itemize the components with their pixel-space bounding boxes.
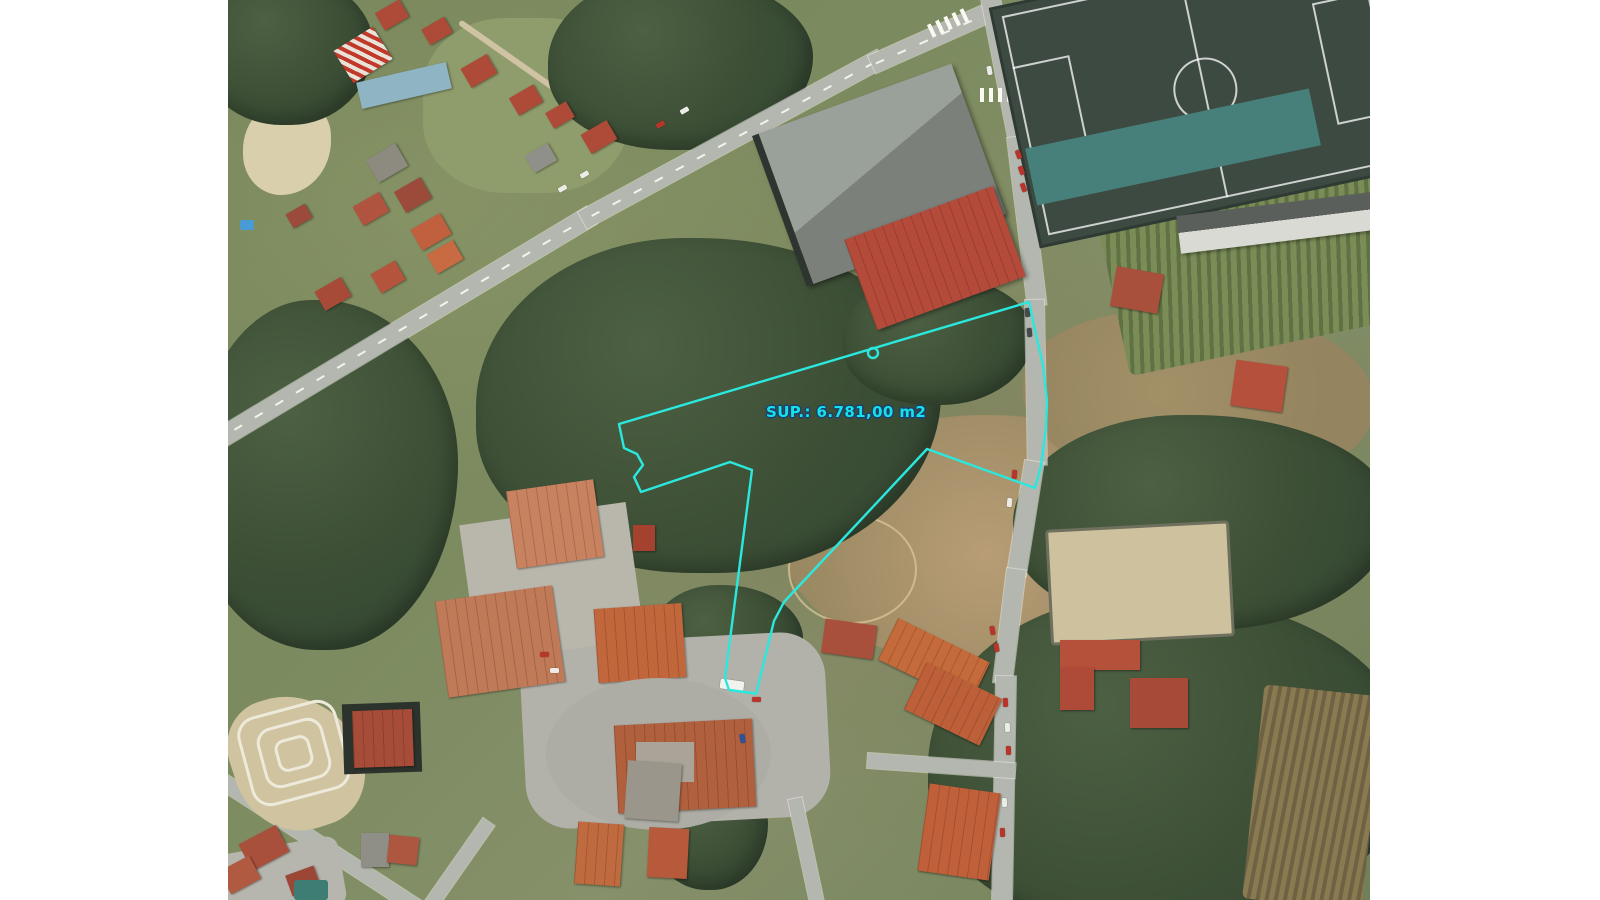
orchard <box>1242 684 1370 900</box>
building-roof <box>633 525 655 551</box>
road <box>788 797 824 900</box>
building-roof <box>1230 360 1288 413</box>
road <box>868 3 994 73</box>
building-roof <box>1110 266 1164 314</box>
tree <box>876 118 894 136</box>
tree <box>784 636 810 662</box>
building-roof <box>647 827 690 879</box>
tree <box>840 132 860 152</box>
building-roof <box>366 143 408 183</box>
road <box>419 818 495 900</box>
screenshot-stage: SUP.: 6.781,00 m2 <box>0 0 1600 900</box>
tree <box>813 112 835 134</box>
apartment-roof <box>917 783 1001 880</box>
tree <box>946 135 962 151</box>
tree <box>826 435 860 467</box>
building-roof <box>574 821 624 886</box>
swimming-pool <box>240 220 254 230</box>
building-roof <box>361 833 389 867</box>
building-roof <box>1060 668 1094 710</box>
tree <box>766 445 806 483</box>
area-label: SUP.: 6.781,00 m2 <box>766 403 926 421</box>
car <box>1027 328 1033 337</box>
pool-patch <box>294 880 328 900</box>
car <box>540 652 549 657</box>
tree <box>923 495 949 521</box>
page-margin-right <box>1370 0 1600 900</box>
tree <box>656 435 706 483</box>
tree <box>916 98 936 118</box>
building-roof <box>353 192 390 226</box>
school-roof <box>506 479 604 568</box>
car <box>752 697 761 702</box>
car <box>986 66 992 76</box>
road <box>1025 300 1047 465</box>
building-roof <box>1060 640 1140 670</box>
tree <box>1056 296 1078 318</box>
tree <box>1086 318 1106 338</box>
tree <box>676 375 736 431</box>
car <box>1012 470 1018 479</box>
building-roof <box>821 619 877 660</box>
car <box>1006 746 1011 755</box>
car <box>1025 308 1031 317</box>
car <box>550 668 559 673</box>
car <box>1000 828 1005 837</box>
car <box>1005 723 1010 732</box>
building-roof <box>394 177 432 213</box>
car <box>1003 698 1008 707</box>
tree <box>526 598 556 626</box>
building-roof <box>352 709 414 768</box>
building-roof <box>285 204 312 229</box>
tree <box>616 342 670 392</box>
building-roof <box>375 0 409 31</box>
page-margin-left <box>0 0 228 900</box>
building-roof <box>1130 678 1188 728</box>
building-roof <box>370 260 405 293</box>
building-roof <box>594 603 687 683</box>
aerial-photo: SUP.: 6.781,00 m2 <box>228 0 1370 900</box>
building-roof <box>387 835 420 866</box>
car <box>1002 798 1007 807</box>
tree <box>883 465 913 495</box>
walled-field <box>1045 520 1235 645</box>
tree <box>788 140 808 160</box>
building-roof <box>624 760 682 822</box>
tree <box>708 465 752 507</box>
car <box>1007 498 1013 507</box>
